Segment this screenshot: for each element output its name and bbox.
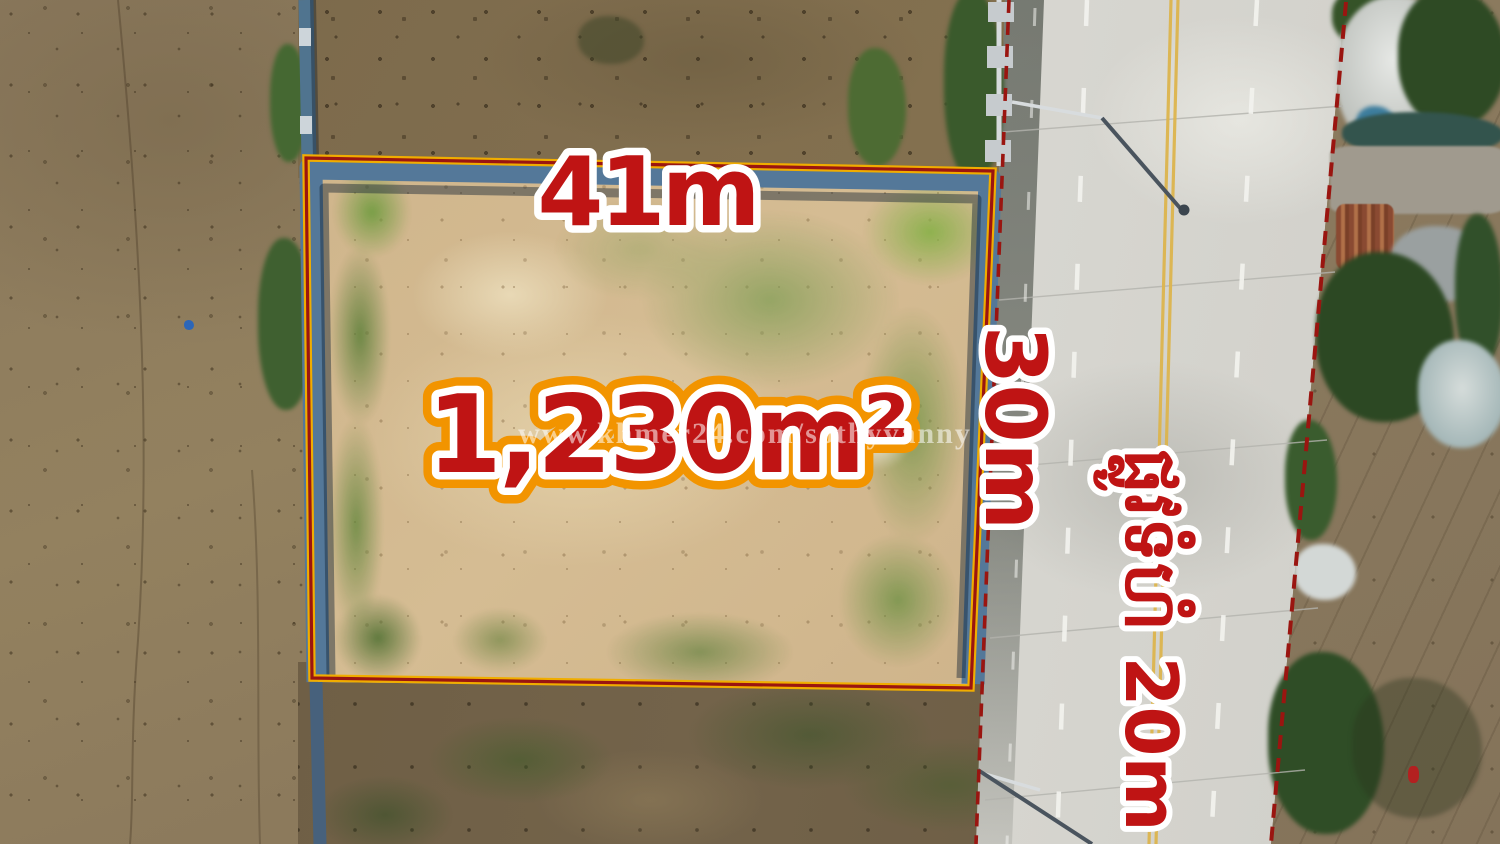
person	[1408, 766, 1419, 783]
roadside-hedge	[944, 0, 1004, 182]
trees	[1398, 0, 1500, 128]
mud-tuft	[578, 16, 644, 64]
bush	[848, 48, 906, 166]
roadside-bush	[1285, 420, 1337, 540]
blue-debris	[184, 320, 194, 330]
sand-patch	[846, 416, 910, 470]
aerial-land-photo: 41m 1,230m² 1,230m² 30m ផ្លូវទំហំ 20m ww…	[0, 0, 1500, 844]
white-sacks	[1418, 340, 1500, 448]
bush	[270, 44, 308, 162]
white-sacks	[1294, 544, 1356, 600]
bush	[258, 238, 314, 410]
bush-shadow	[1352, 678, 1482, 818]
